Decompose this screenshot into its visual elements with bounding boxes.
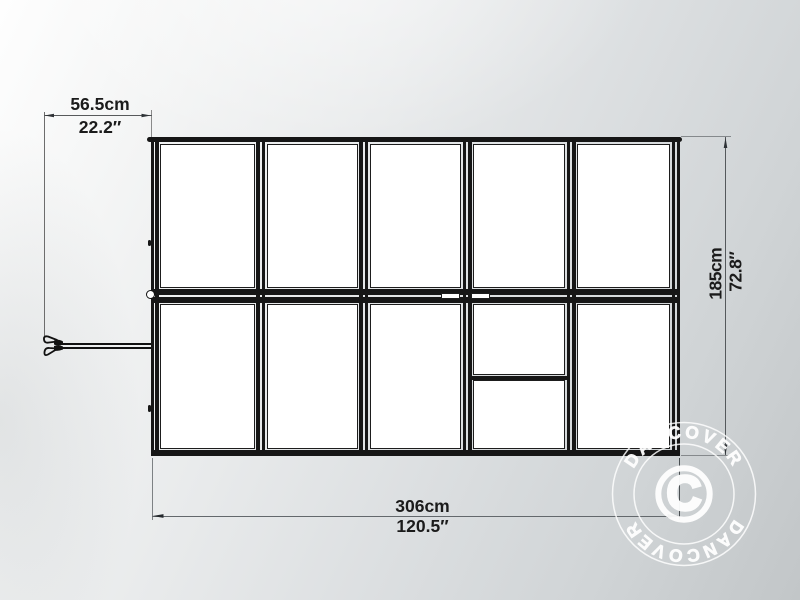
svg-text:DANCOVER: DANCOVER <box>620 517 748 567</box>
svg-text:C: C <box>667 468 702 521</box>
svg-text:DANCOVER: DANCOVER <box>620 422 748 472</box>
